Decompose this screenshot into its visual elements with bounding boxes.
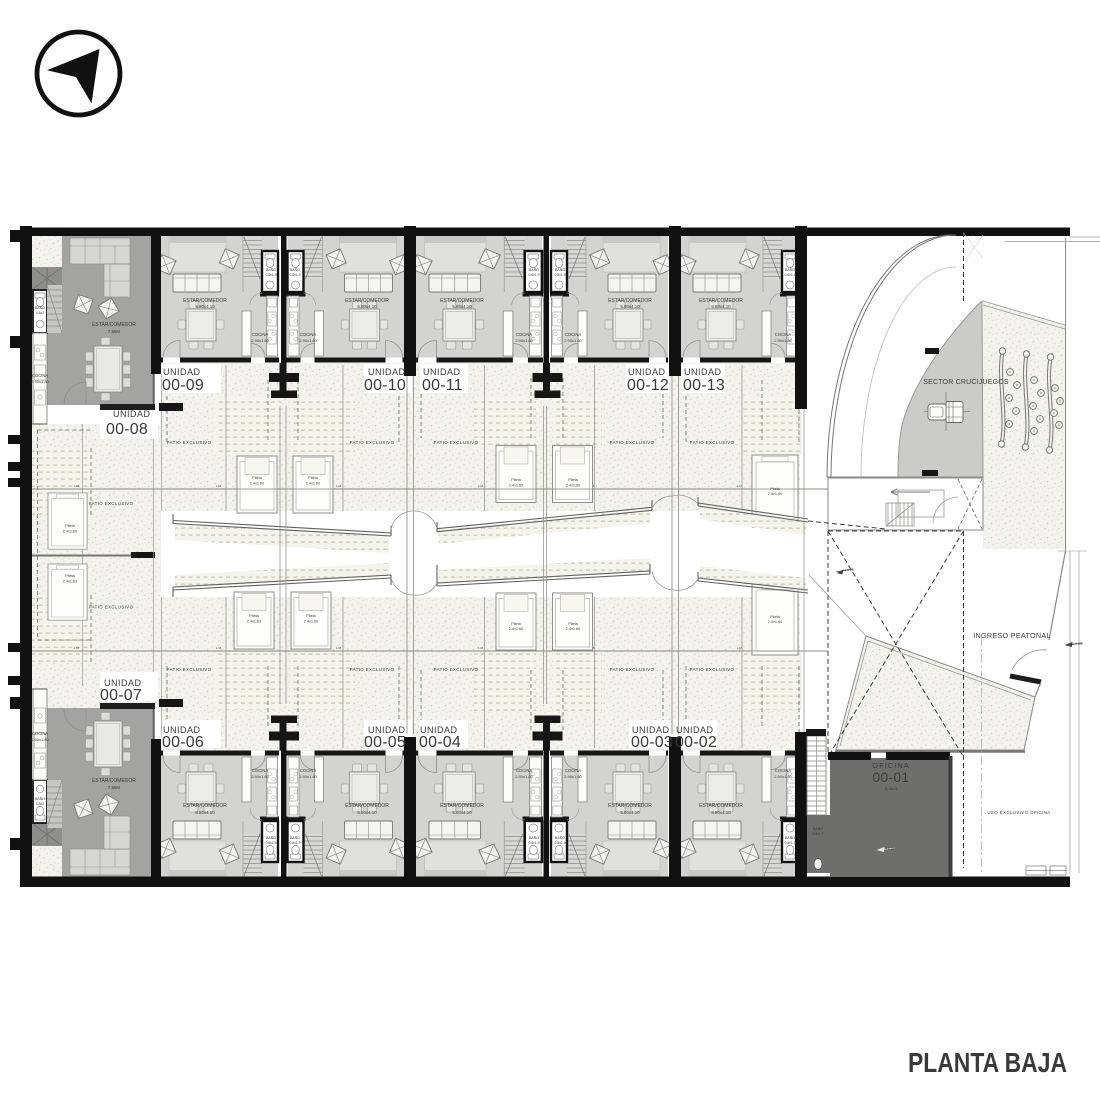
svg-text:UNIDAD: UNIDAD xyxy=(423,367,461,377)
svg-text:00-10: 00-10 xyxy=(364,377,406,394)
svg-text:COCINA: COCINA xyxy=(300,332,316,337)
svg-text:BAÑO: BAÑO xyxy=(555,267,565,272)
svg-text:0.8x1.9: 0.8x1.9 xyxy=(289,273,300,277)
svg-text:L.M.: L.M. xyxy=(74,484,80,488)
svg-text:2.90x1.80: 2.90x1.80 xyxy=(774,338,792,343)
svg-text:ESTAR/COMEDOR: ESTAR/COMEDOR xyxy=(92,778,136,784)
svg-text:ESTAR/COMEDOR: ESTAR/COMEDOR xyxy=(183,803,227,809)
svg-text:5.80x4.10: 5.80x4.10 xyxy=(357,810,377,815)
svg-text:5.80x4.10: 5.80x4.10 xyxy=(620,810,640,815)
svg-text:SECTOR CRUCIJUEGOS: SECTOR CRUCIJUEGOS xyxy=(923,379,1009,386)
svg-text:UNIDAD: UNIDAD xyxy=(628,367,666,377)
svg-text:2.90x1.80: 2.90x1.80 xyxy=(774,774,792,779)
svg-text:0.8x1.9: 0.8x1.9 xyxy=(528,273,539,277)
svg-text:BAÑO: BAÑO xyxy=(785,835,795,840)
svg-text:UNIDAD: UNIDAD xyxy=(113,409,151,419)
svg-text:2.90x1.80: 2.90x1.80 xyxy=(515,338,533,343)
svg-text:2.90x1.80: 2.90x1.80 xyxy=(31,737,49,742)
svg-text:Pileta: Pileta xyxy=(511,622,521,626)
svg-text:COCINA: COCINA xyxy=(252,768,268,773)
svg-text:Pileta: Pileta xyxy=(568,478,578,482)
svg-text:PATIO EXCLUSIVO: PATIO EXCLUSIVO xyxy=(89,501,134,506)
svg-text:PLANTA BAJA: PLANTA BAJA xyxy=(908,1047,1067,1078)
svg-text:2.90x1.80: 2.90x1.80 xyxy=(251,338,269,343)
svg-text:5.80x4.10: 5.80x4.10 xyxy=(620,304,640,309)
svg-text:COCINA: COCINA xyxy=(516,332,532,337)
svg-text:2.4x1.60: 2.4x1.60 xyxy=(768,620,783,624)
svg-text:BAÑO: BAÑO xyxy=(290,267,300,272)
svg-text:5.80x4.10: 5.80x4.10 xyxy=(711,304,731,309)
svg-text:5.80x4.10: 5.80x4.10 xyxy=(452,810,472,815)
svg-text:0.8x1.9: 0.8x1.9 xyxy=(784,841,795,845)
svg-text:00-05: 00-05 xyxy=(364,734,406,751)
svg-text:Pileta: Pileta xyxy=(249,614,259,618)
svg-text:Pileta: Pileta xyxy=(770,615,780,619)
svg-text:COCINA: COCINA xyxy=(300,768,316,773)
svg-text:± 0.00: ± 0.00 xyxy=(885,847,895,851)
svg-text:ESTAR/COMEDOR: ESTAR/COMEDOR xyxy=(345,803,389,809)
svg-text:2.90x1.80: 2.90x1.80 xyxy=(299,774,317,779)
svg-text:0.8x1.9: 0.8x1.9 xyxy=(289,841,300,845)
svg-text:COCINA: COCINA xyxy=(565,768,581,773)
svg-text:± 0.00: ± 0.00 xyxy=(844,568,854,572)
svg-text:2.90x1.80: 2.90x1.80 xyxy=(251,774,269,779)
svg-text:2.4x1.60: 2.4x1.60 xyxy=(566,627,581,631)
svg-text:L.M.: L.M. xyxy=(478,646,484,650)
svg-text:Pileta: Pileta xyxy=(65,524,75,528)
svg-text:0.8x1.9: 0.8x1.9 xyxy=(784,273,795,277)
svg-text:USO EXCLUSIVO OFICINA: USO EXCLUSIVO OFICINA xyxy=(987,810,1050,815)
svg-text:00-03: 00-03 xyxy=(631,734,673,751)
svg-text:00-04: 00-04 xyxy=(419,734,461,751)
svg-text:5.80x4.10: 5.80x4.10 xyxy=(711,810,731,815)
svg-text:PATIO EXCLUSIVO: PATIO EXCLUSIVO xyxy=(434,667,479,672)
svg-text:COCINA: COCINA xyxy=(32,731,48,736)
svg-text:PATIO EXCLUSIVO: PATIO EXCLUSIVO xyxy=(167,667,212,672)
svg-text:PATIO EXCLUSIVO: PATIO EXCLUSIVO xyxy=(350,440,395,445)
svg-text:2.4x1.60: 2.4x1.60 xyxy=(306,482,321,486)
svg-text:± 0.00: ± 0.00 xyxy=(1072,642,1082,646)
svg-text:00-07: 00-07 xyxy=(100,687,142,704)
svg-text:COCINA: COCINA xyxy=(565,332,581,337)
svg-text:ESTAR/COMEDOR: ESTAR/COMEDOR xyxy=(92,322,136,328)
svg-text:2.4x1.60: 2.4x1.60 xyxy=(566,484,581,488)
svg-text:2.4x1.60: 2.4x1.60 xyxy=(63,580,78,584)
svg-text:L.M.: L.M. xyxy=(216,484,222,488)
svg-text:00-06: 00-06 xyxy=(162,734,204,751)
svg-text:5.80x4.10: 5.80x4.10 xyxy=(195,810,215,815)
svg-text:2.90x1.80: 2.90x1.80 xyxy=(515,774,533,779)
svg-text:INGRESO PEATONAL: INGRESO PEATONAL xyxy=(973,631,1051,640)
svg-text:COCINA: COCINA xyxy=(775,768,791,773)
svg-text:00-12: 00-12 xyxy=(627,377,669,394)
svg-text:BAÑO: BAÑO xyxy=(35,305,45,310)
svg-text:COCINA: COCINA xyxy=(32,373,48,378)
svg-text:Pileta: Pileta xyxy=(308,476,318,480)
svg-text:PATIO EXCLUSIVO: PATIO EXCLUSIVO xyxy=(690,667,735,672)
svg-text:L.M.: L.M. xyxy=(74,646,80,650)
svg-text:BAÑO: BAÑO xyxy=(813,826,823,831)
svg-text:0.8x1.9: 0.8x1.9 xyxy=(812,832,823,836)
svg-text:2.4x1.60: 2.4x1.60 xyxy=(509,484,524,488)
svg-text:PATIO EXCLUSIVO: PATIO EXCLUSIVO xyxy=(434,440,479,445)
svg-text:BAÑO: BAÑO xyxy=(555,835,565,840)
svg-text:5.80x4.10: 5.80x4.10 xyxy=(452,304,472,309)
svg-text:5.80x4.10: 5.80x4.10 xyxy=(357,304,377,309)
svg-text:5.46x3: 5.46x3 xyxy=(885,787,896,791)
svg-text:Pileta: Pileta xyxy=(511,478,521,482)
svg-text:L.M.: L.M. xyxy=(336,484,342,488)
svg-text:COCINA: COCINA xyxy=(516,768,532,773)
svg-text:00-09: 00-09 xyxy=(162,377,204,394)
svg-text:L.M.: L.M. xyxy=(478,484,484,488)
svg-text:ESTAR/COMEDOR: ESTAR/COMEDOR xyxy=(608,803,652,809)
svg-text:00-01: 00-01 xyxy=(872,770,909,785)
svg-text:COCINA: COCINA xyxy=(775,332,791,337)
svg-text:BAÑO: BAÑO xyxy=(529,835,539,840)
svg-text:0.8x1.9: 0.8x1.9 xyxy=(554,841,565,845)
svg-text:PATIO EXCLUSIVO: PATIO EXCLUSIVO xyxy=(610,667,655,672)
svg-text:2.90x1.80: 2.90x1.80 xyxy=(31,379,49,384)
svg-text:BAÑO: BAÑO xyxy=(529,267,539,272)
svg-text:ESTAR/COMEDOR: ESTAR/COMEDOR xyxy=(440,803,484,809)
svg-text:ESTAR/COMEDOR: ESTAR/COMEDOR xyxy=(699,803,743,809)
svg-text:Pileta: Pileta xyxy=(770,487,780,491)
svg-text:OFICINA: OFICINA xyxy=(872,761,909,770)
svg-text:Pileta: Pileta xyxy=(252,476,262,480)
svg-text:Pileta: Pileta xyxy=(306,614,316,618)
svg-text:2.4x1.60: 2.4x1.60 xyxy=(768,492,783,496)
svg-text:UNIDAD: UNIDAD xyxy=(163,367,201,377)
svg-text:0.8x2: 0.8x2 xyxy=(36,311,44,315)
svg-text:2.4x1.60: 2.4x1.60 xyxy=(247,620,262,624)
svg-text:7.95M: 7.95M xyxy=(108,785,121,790)
svg-text:PATIO EXCLUSIVO: PATIO EXCLUSIVO xyxy=(610,440,655,445)
svg-text:L.M.: L.M. xyxy=(216,646,222,650)
svg-text:UNIDAD: UNIDAD xyxy=(368,367,406,377)
svg-text:PATIO EXCLUSIVO: PATIO EXCLUSIVO xyxy=(690,440,735,445)
svg-text:00-02: 00-02 xyxy=(675,734,717,751)
svg-text:0.8x1.9: 0.8x1.9 xyxy=(265,841,276,845)
svg-text:L.M.: L.M. xyxy=(336,646,342,650)
svg-text:00-11: 00-11 xyxy=(422,377,463,394)
svg-text:2.4x1.60: 2.4x1.60 xyxy=(250,482,265,486)
svg-text:Pileta: Pileta xyxy=(65,574,75,578)
svg-text:00-13: 00-13 xyxy=(683,377,725,394)
svg-text:2.4x1.60: 2.4x1.60 xyxy=(509,627,524,631)
svg-text:PATIO EXCLUSIVO: PATIO EXCLUSIVO xyxy=(89,605,134,610)
svg-text:BAÑO: BAÑO xyxy=(290,835,300,840)
svg-text:0.8x1.9: 0.8x1.9 xyxy=(554,273,565,277)
svg-text:COCINA: COCINA xyxy=(252,332,268,337)
svg-text:BAÑO: BAÑO xyxy=(35,796,45,801)
svg-text:PATIO EXCLUSIVO: PATIO EXCLUSIVO xyxy=(167,440,212,445)
svg-text:Pileta: Pileta xyxy=(568,622,578,626)
svg-text:2.90x1.80: 2.90x1.80 xyxy=(564,338,582,343)
svg-text:00-08: 00-08 xyxy=(106,421,148,438)
svg-text:BAÑO: BAÑO xyxy=(266,835,276,840)
svg-text:2.90x1.80: 2.90x1.80 xyxy=(564,774,582,779)
svg-text:2.4x1.60: 2.4x1.60 xyxy=(304,620,319,624)
svg-text:PATIO EXCLUSIVO: PATIO EXCLUSIVO xyxy=(350,667,395,672)
svg-text:0.8x1.9: 0.8x1.9 xyxy=(265,273,276,277)
svg-text:5.80x4.10: 5.80x4.10 xyxy=(195,304,215,309)
svg-text:0.8x1.9: 0.8x1.9 xyxy=(528,841,539,845)
svg-text:7.95M: 7.95M xyxy=(108,329,121,334)
svg-text:BAÑO: BAÑO xyxy=(785,267,795,272)
svg-text:0.8x2: 0.8x2 xyxy=(36,802,44,806)
svg-text:2.4x1.60: 2.4x1.60 xyxy=(63,530,78,534)
svg-text:UNIDAD: UNIDAD xyxy=(684,367,722,377)
svg-text:BAÑO: BAÑO xyxy=(266,267,276,272)
svg-text:2.90x1.80: 2.90x1.80 xyxy=(299,338,317,343)
